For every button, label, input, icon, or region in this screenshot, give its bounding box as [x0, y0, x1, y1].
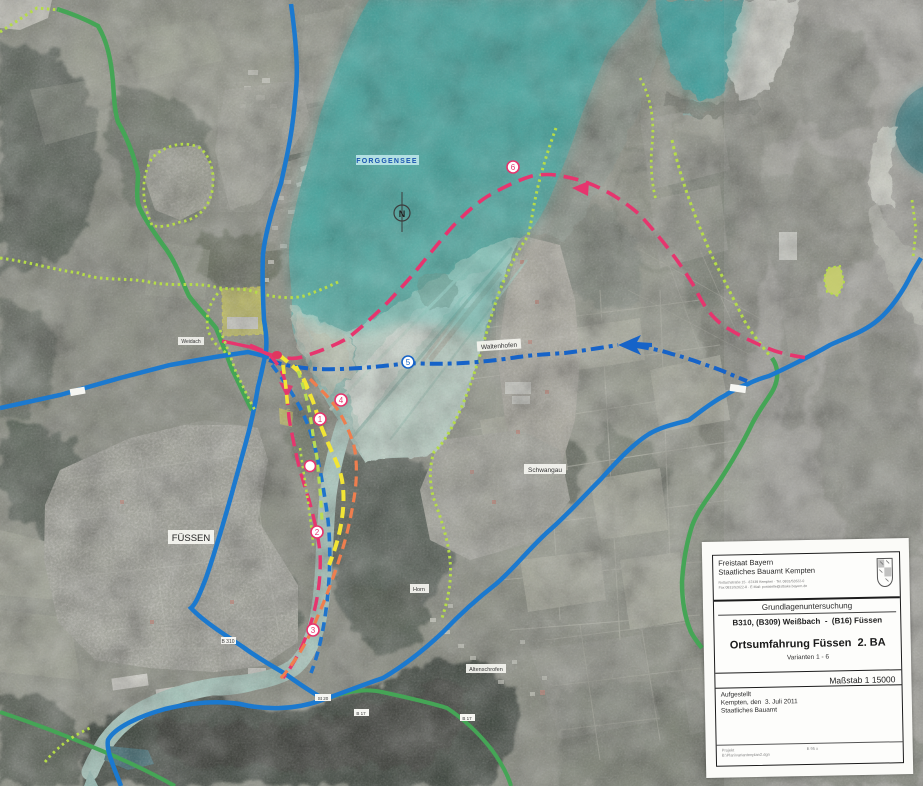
- svg-text:Schwangau: Schwangau: [528, 467, 562, 474]
- svg-text:B 310: B 310: [221, 639, 234, 645]
- svg-text:FÜSSEN: FÜSSEN: [172, 533, 211, 544]
- svg-text:Altenschrofen: Altenschrofen: [469, 667, 503, 673]
- svg-text:B 17: B 17: [462, 716, 472, 721]
- svg-text:St 20: St 20: [318, 696, 329, 701]
- svg-text:4: 4: [339, 396, 344, 405]
- svg-text:N: N: [399, 209, 406, 219]
- svg-text:1: 1: [318, 415, 323, 424]
- svg-text:Weidach: Weidach: [181, 339, 201, 345]
- svg-text:FORGGENSEE: FORGGENSEE: [356, 158, 417, 165]
- svg-text:3: 3: [311, 626, 316, 635]
- svg-text:B 17: B 17: [356, 711, 366, 716]
- svg-text:2: 2: [315, 528, 320, 537]
- svg-text:Horn: Horn: [413, 587, 425, 593]
- svg-text:5: 5: [406, 358, 411, 367]
- svg-text:6: 6: [511, 163, 516, 172]
